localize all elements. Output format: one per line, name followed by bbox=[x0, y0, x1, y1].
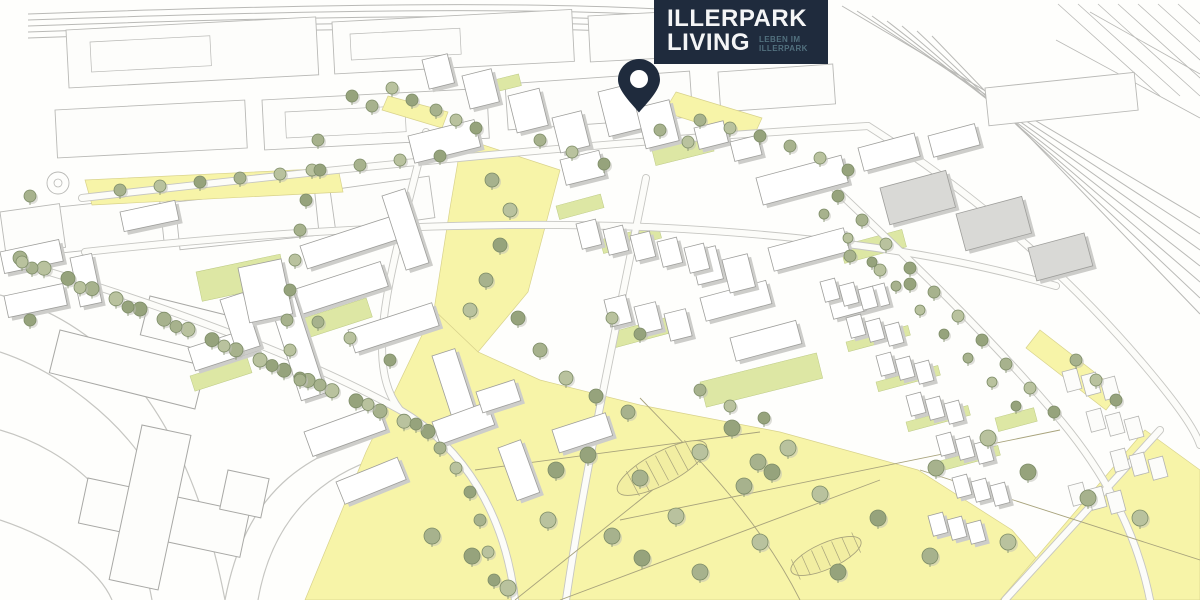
logo-tagline-line1: LEBEN IM bbox=[759, 35, 808, 45]
logo-title-line1: ILLERPARK bbox=[667, 7, 820, 31]
masterplan-illustration bbox=[0, 0, 1200, 600]
location-pin-icon[interactable] bbox=[616, 58, 662, 114]
illerpark-logo: ILLERPARK LIVING LEBEN IM ILLERPARK bbox=[654, 0, 828, 64]
logo-tagline-line2: ILLERPARK bbox=[759, 44, 808, 54]
location-pin-hole bbox=[630, 70, 648, 88]
masterplan-canvas: ILLERPARK LIVING LEBEN IM ILLERPARK bbox=[0, 0, 1200, 600]
logo-title-line2: LIVING bbox=[667, 31, 750, 55]
logo-tagline: LEBEN IM ILLERPARK bbox=[759, 33, 808, 54]
